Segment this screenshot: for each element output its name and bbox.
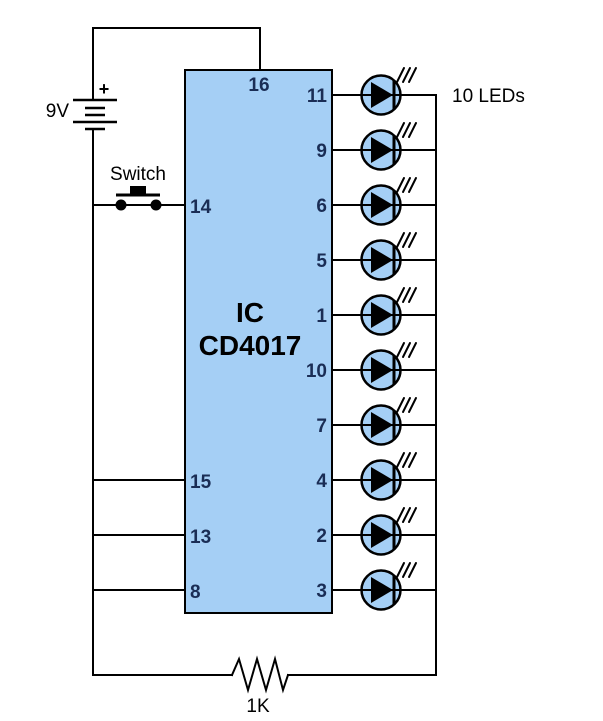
led-row: 6 (316, 178, 436, 225)
ic-name-line1: IC (236, 297, 264, 328)
ic-right-pin-label: 10 (306, 361, 327, 382)
circuit-diagram: + 9V Switch 1K 16 IC CD4017 119651107423… (0, 0, 603, 721)
led-row: 1 (316, 288, 436, 335)
supply-top-wire (93, 28, 260, 70)
ic-name-line2: CD4017 (199, 330, 302, 361)
ic-right-pin-label: 6 (316, 196, 327, 217)
circuit-canvas: + 9V Switch 1K 16 IC CD4017 119651107423… (0, 0, 603, 721)
resistor-symbol (232, 659, 288, 690)
ic-left-pin-label: 13 (190, 527, 211, 548)
ic-right-pin-label: 2 (316, 526, 327, 547)
leds-caption: 10 LEDs (452, 86, 525, 107)
ic-right-pin-label: 5 (316, 251, 327, 272)
ic-right-pin-label: 9 (316, 141, 327, 162)
ic-right-pin-label: 11 (307, 86, 328, 107)
ic-left-pin-label: 14 (190, 197, 212, 218)
led-row: 7 (316, 398, 436, 445)
battery-symbol: + 9V (46, 28, 117, 129)
led-row: 9 (316, 123, 436, 170)
resistor-label: 1K (246, 696, 270, 717)
battery-voltage-label: 9V (46, 101, 70, 122)
push-switch: Switch (93, 164, 185, 211)
ic-left-pin-label: 15 (190, 472, 212, 493)
led-row: 5 (316, 233, 436, 280)
led-row: 2 (316, 508, 436, 555)
switch-contact-dot-left (116, 200, 127, 211)
battery-positive-label: + (99, 79, 110, 99)
ic-right-pin-label: 1 (316, 306, 327, 327)
ic-pin-16-label: 16 (248, 75, 269, 96)
switch-contact-dot-right (151, 200, 162, 211)
ic-right-pin-label: 7 (316, 416, 327, 437)
ic-left-pin-label: 8 (190, 582, 201, 603)
led-row: 3 (316, 563, 436, 610)
led-row: 4 (316, 453, 436, 500)
switch-knob (130, 186, 146, 195)
ic-right-pin-label: 3 (316, 581, 327, 602)
ic-right-pin-label: 4 (316, 471, 327, 492)
switch-label: Switch (110, 164, 166, 185)
